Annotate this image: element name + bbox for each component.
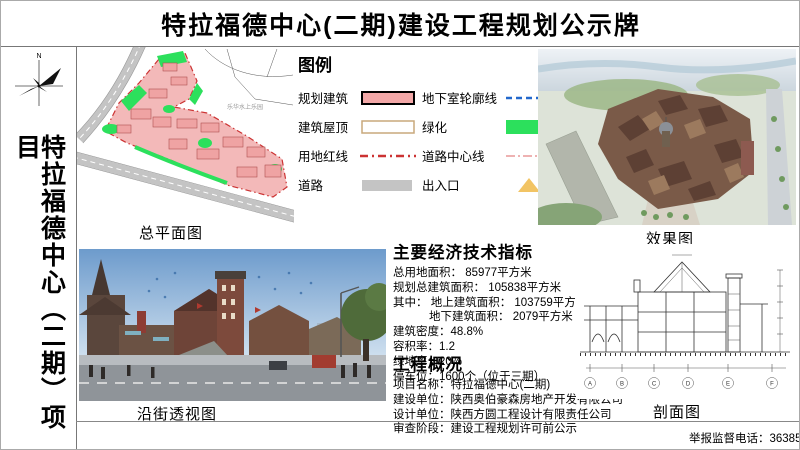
legend-title: 图例 (298, 51, 536, 76)
section-drawing: A B C D E F (576, 244, 798, 396)
legend-label: 地下室轮廓线 (422, 88, 506, 107)
legend-label: 用地红线 (298, 146, 360, 165)
section-panel: A B C D E F (576, 244, 798, 399)
header: 特拉福德中心(二期)建设工程规划公示牌 (1, 1, 800, 47)
legend-label: 规划建筑 (298, 88, 360, 107)
project-name-vertical: 特拉福德中心（二期）项目 (14, 134, 64, 450)
legend: 图例 规划建筑 地下室轮廓线 建筑屋顶 绿化 用地红线 道路中心线 道路 出入口 (298, 51, 536, 194)
legend-label: 绿化 (422, 117, 506, 136)
grid-bubbles: A B C D E F (585, 378, 778, 389)
overview-line: 审查阶段：建设工程规划许可前公示 (393, 422, 608, 437)
planned-building-swatch (360, 90, 416, 106)
sidebar: N 特拉福德中心（二期）项目 (1, 46, 77, 450)
road-swatch (360, 177, 416, 193)
site-plan-panel: 乐华水上乐园 (77, 47, 294, 224)
site-plan-label: 总平面图 (139, 222, 203, 243)
svg-text:C: C (652, 382, 657, 388)
street-perspective-image (79, 249, 386, 401)
svg-text:F: F (770, 382, 774, 388)
footer-divider (76, 421, 800, 422)
notice-board: 特拉福德中心(二期)建设工程规划公示牌 N 特拉福德中心（二期）项目 (0, 0, 800, 450)
aerial-rendering-image (538, 49, 796, 225)
site-plan-drawing: 乐华水上乐园 (77, 47, 294, 224)
land-red-line-swatch (360, 148, 416, 164)
page-title: 特拉福德中心(二期)建设工程规划公示牌 (161, 6, 641, 42)
rendering-panel (538, 49, 796, 225)
legend-label: 道路中心线 (422, 146, 506, 165)
compass-north-label: N (36, 53, 41, 60)
svg-text:E: E (726, 382, 730, 388)
svg-text:D: D (686, 382, 691, 388)
site-plan-annotation: 乐华水上乐园 (227, 103, 263, 111)
svg-text:A: A (588, 382, 592, 388)
street-view-panel (79, 249, 386, 401)
building-roof-swatch (360, 119, 416, 135)
supervision-hotline: 举报监督电话：36385538 (689, 430, 800, 446)
compass-icon: N (9, 52, 69, 112)
legend-label: 建筑屋顶 (298, 117, 360, 136)
svg-text:B: B (620, 382, 624, 388)
legend-label: 出入口 (422, 175, 506, 194)
section-label: 剖面图 (653, 401, 701, 422)
legend-label: 道路 (298, 175, 360, 194)
